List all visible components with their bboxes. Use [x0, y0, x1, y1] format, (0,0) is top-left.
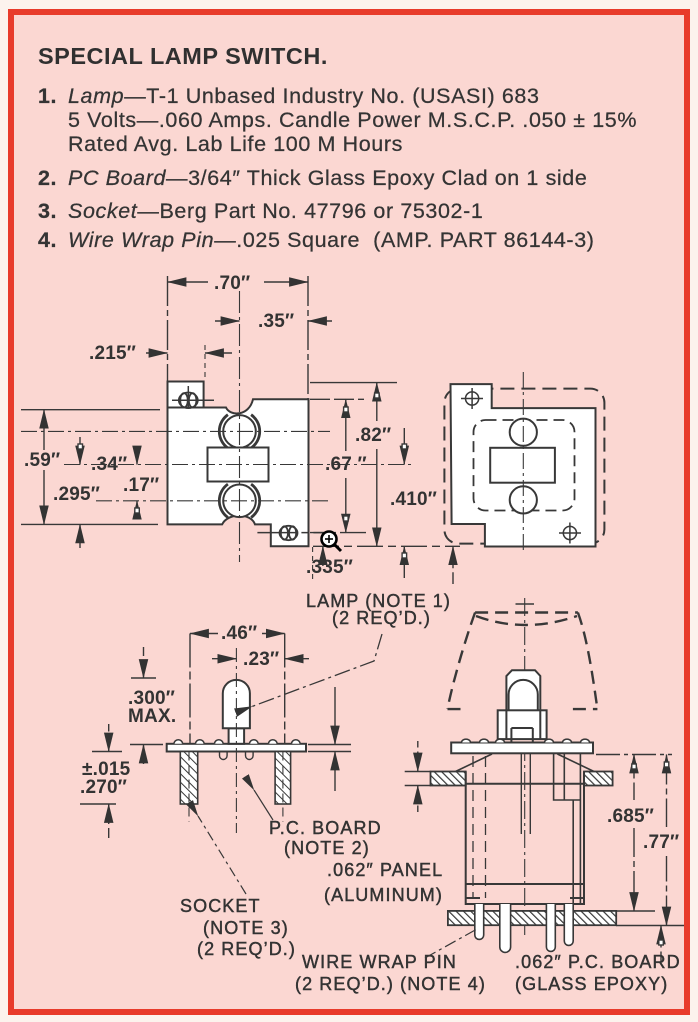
svg-text:.410″: .410″ — [390, 489, 437, 510]
svg-text:P.C. BOARD: P.C. BOARD — [269, 818, 382, 838]
svg-text:.17″: .17″ — [123, 475, 159, 496]
svg-text:(ALUMINUM): (ALUMINUM) — [324, 885, 443, 905]
svg-text:.335″: .335″ — [306, 557, 353, 578]
svg-text:SOCKET: SOCKET — [180, 896, 261, 916]
svg-text:.295″: .295″ — [53, 484, 100, 505]
svg-text:.70″: .70″ — [214, 273, 250, 294]
svg-text:.062″ P.C. BOARD: .062″ P.C. BOARD — [515, 952, 681, 972]
svg-text:.062″ PANEL: .062″ PANEL — [327, 860, 443, 880]
svg-text:WIRE WRAP PIN: WIRE WRAP PIN — [302, 952, 457, 972]
svg-text:.35″: .35″ — [258, 311, 294, 332]
svg-text:(GLASS EPOXY): (GLASS EPOXY) — [515, 974, 668, 994]
svg-text:.59″: .59″ — [24, 450, 60, 471]
svg-text:.77″: .77″ — [643, 832, 679, 853]
svg-text:.82″: .82″ — [355, 425, 391, 446]
svg-text:.34″: .34″ — [91, 454, 127, 475]
svg-text:(2 REQ’D.) (NOTE 4): (2 REQ’D.) (NOTE 4) — [295, 974, 486, 994]
svg-text:(NOTE 3): (NOTE 3) — [203, 918, 289, 938]
svg-text:.67 ″: .67 ″ — [325, 454, 367, 475]
svg-text:.46″: .46″ — [221, 623, 257, 644]
svg-text:.270″: .270″ — [80, 777, 127, 798]
svg-text:(2 REQ’D.): (2 REQ’D.) — [332, 608, 431, 628]
svg-text:(NOTE 2): (NOTE 2) — [284, 838, 370, 858]
svg-text:MAX.: MAX. — [128, 706, 176, 727]
svg-text:.685″: .685″ — [607, 806, 654, 827]
svg-text:.215″: .215″ — [89, 343, 136, 364]
svg-text:(2 REQ’D.): (2 REQ’D.) — [197, 939, 296, 959]
svg-text:.23″: .23″ — [243, 649, 279, 670]
